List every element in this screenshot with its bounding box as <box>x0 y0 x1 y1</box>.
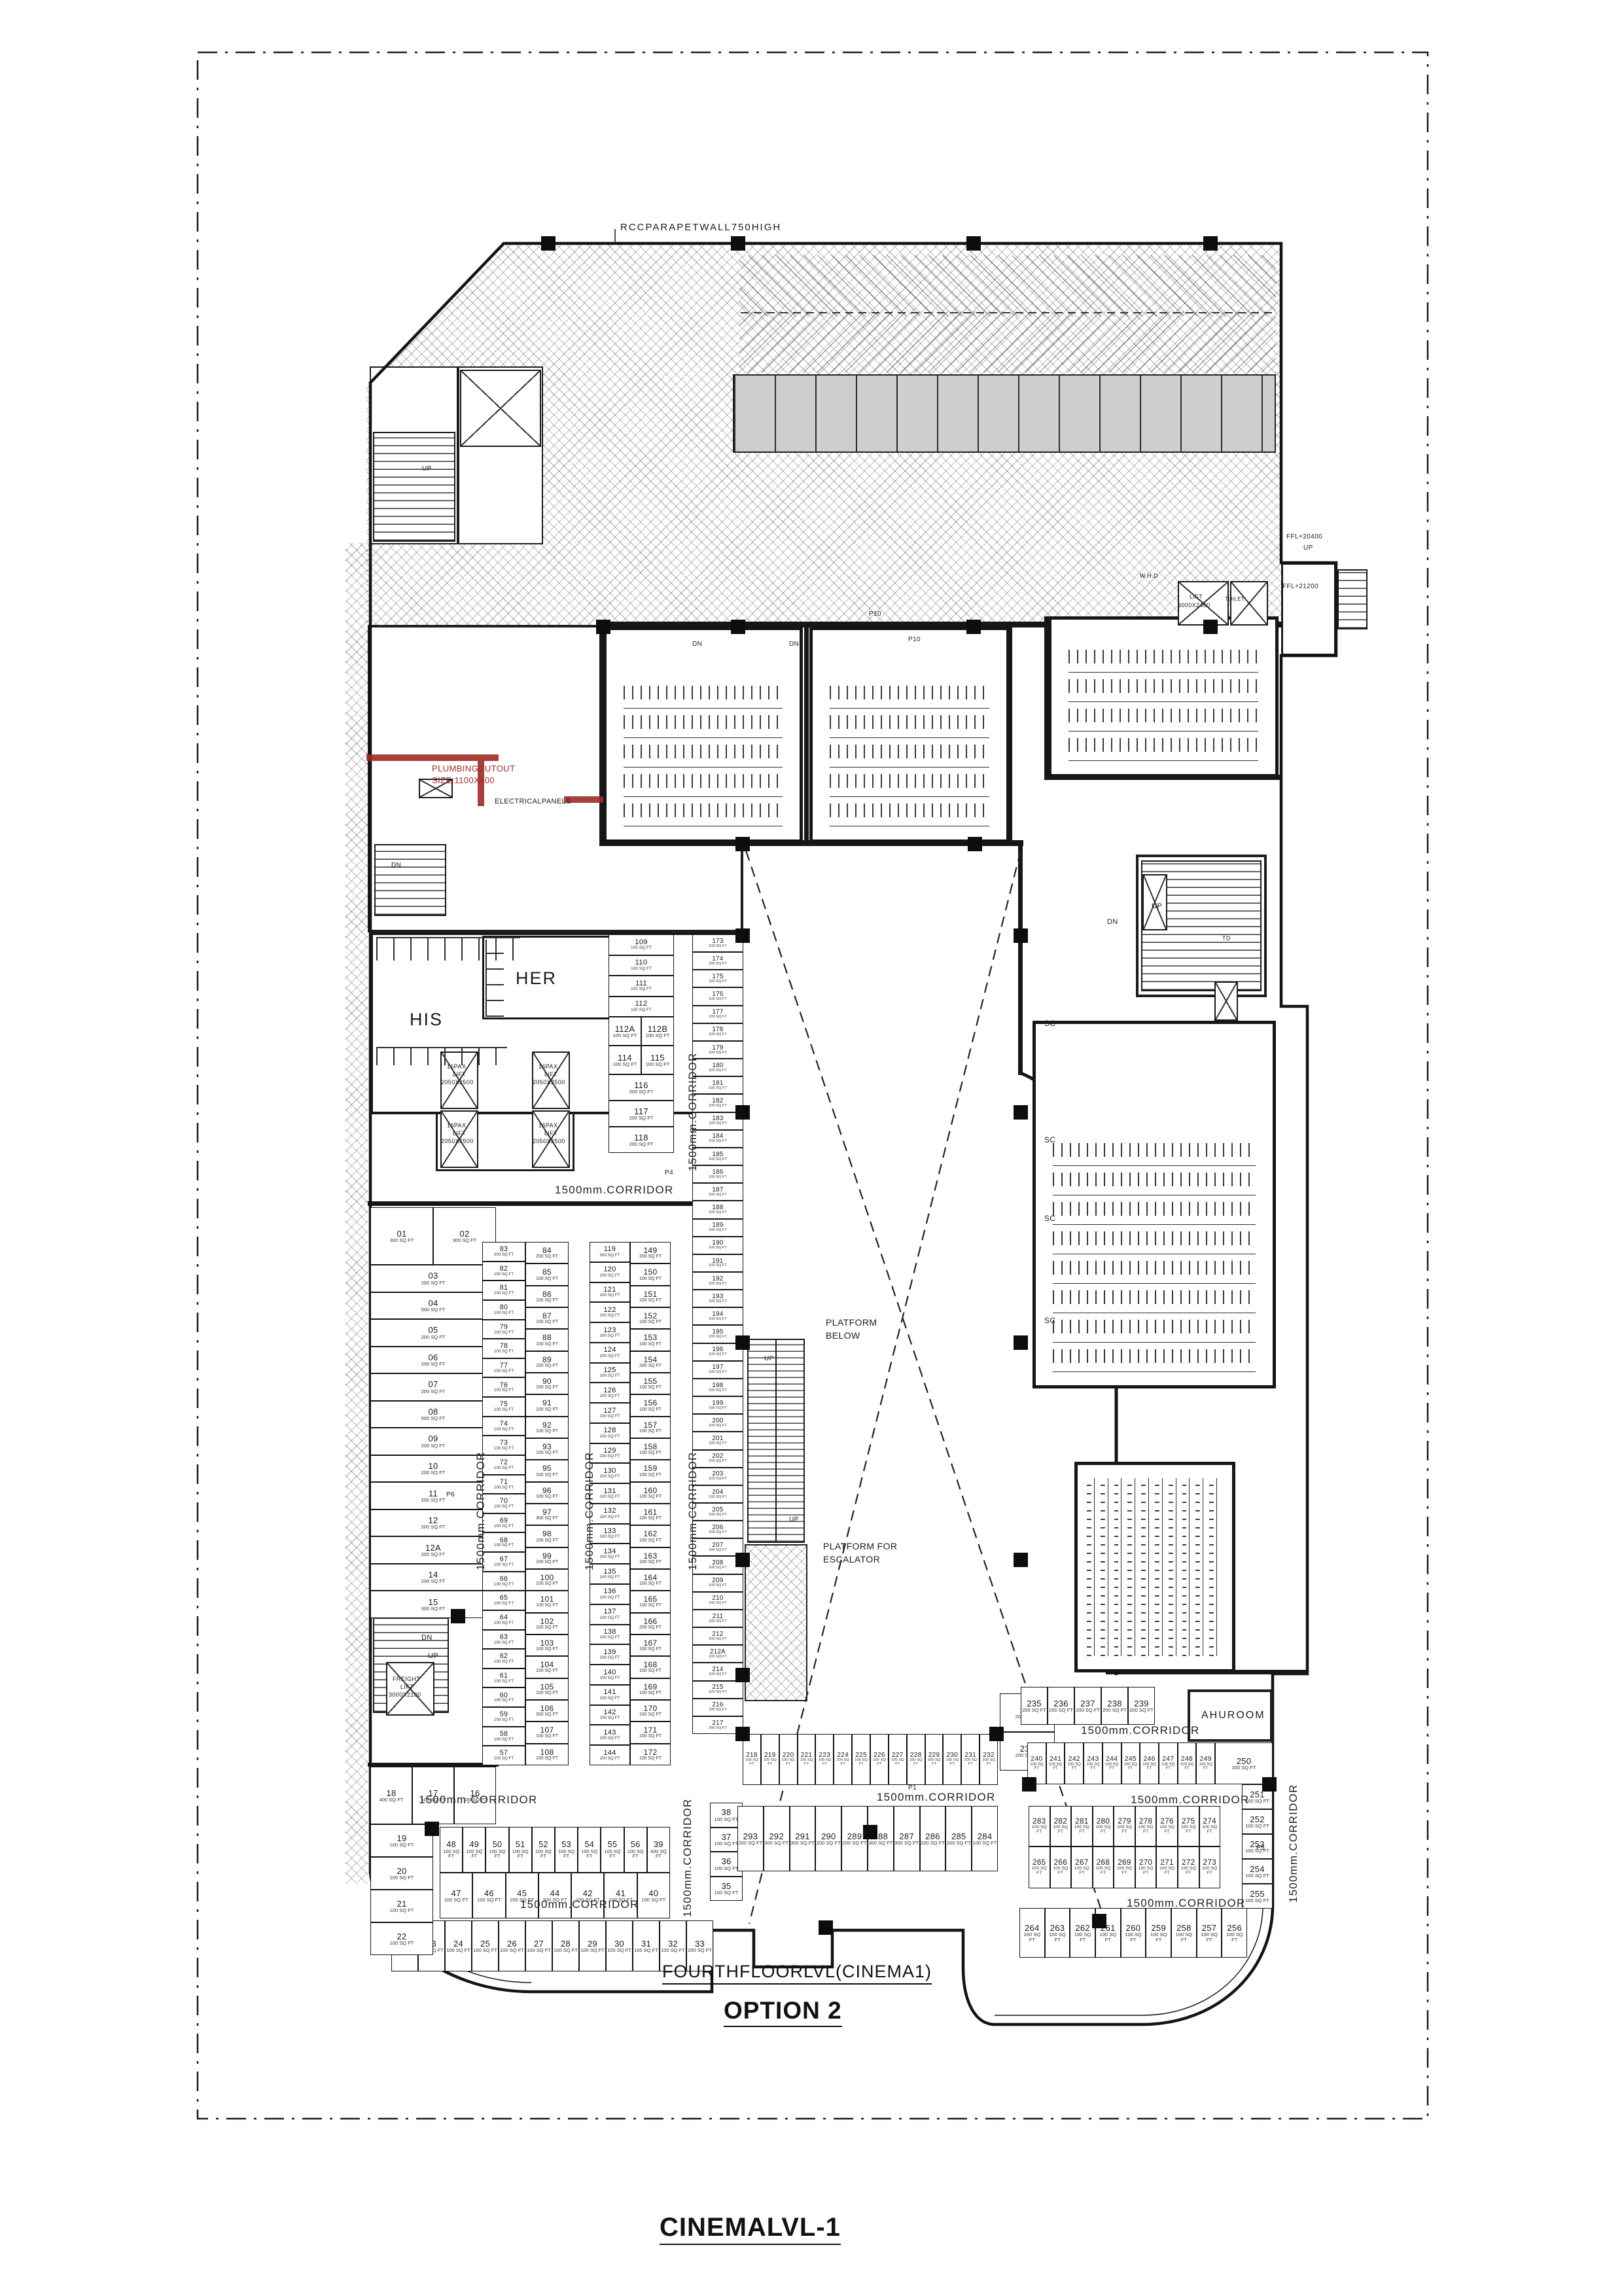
unit-area: 300 SQ FT <box>536 1516 558 1521</box>
corridor-label: 1500mm.CORRIDOR <box>1081 1725 1199 1736</box>
seat-row <box>1053 1349 1256 1372</box>
unit-number: 235 <box>1027 1699 1042 1708</box>
unit-cell: 74100 SQ FT <box>482 1417 525 1436</box>
unit-number: 01 <box>397 1229 406 1238</box>
unit-cell: 87100 SQ FT <box>525 1307 569 1329</box>
chevron-roof <box>739 255 1276 373</box>
unit-number: 03 <box>428 1271 438 1280</box>
unit-area: 100 SQ FT <box>1200 1826 1220 1835</box>
unit-area: 100 SQ FT <box>536 1603 558 1608</box>
unit-number: 41 <box>616 1889 626 1898</box>
unit-cell: 238200 SQ FT <box>1101 1687 1128 1725</box>
unit-area: 100 SQ FT <box>661 1948 685 1953</box>
unit-area: 300 SQ FT <box>790 1841 815 1846</box>
unit-area: 100 SQ FT <box>536 1581 558 1586</box>
unit-cell: 59100 SQ FT <box>482 1707 525 1727</box>
unit-cell: 09200 SQ FT <box>370 1428 496 1455</box>
seat-row <box>830 804 989 826</box>
annotation: PLATFORM <box>826 1318 877 1327</box>
unit-cell: 163100 SQ FT <box>630 1547 671 1569</box>
unit-number: 85 <box>542 1268 552 1276</box>
unit-cell: 170100 SQ FT <box>630 1700 671 1722</box>
unit-cell: 241100 SQ FT <box>1046 1742 1065 1784</box>
unit-area: 100 SQ FT <box>527 1948 551 1953</box>
unit-area: 100 SQ FT <box>613 1033 637 1038</box>
annotation: LIFT <box>544 1072 557 1078</box>
annotation: SC <box>1044 1316 1055 1324</box>
strip-83-57: 83300 SQ FT82100 SQ FT81100 SQ FT80100 S… <box>482 1242 525 1765</box>
unit-cell: 172100 SQ FT <box>630 1744 671 1765</box>
unit-cell: 223100 SQ FT <box>815 1734 834 1785</box>
unit-area: 100 SQ FT <box>494 1583 514 1587</box>
unit-area: 100 SQ FT <box>599 1334 620 1339</box>
escalator <box>747 1339 805 1543</box>
unit-area: 300 SQ FT <box>421 1606 446 1612</box>
strip-119-144: 119300 SQ FT120100 SQ FT121100 SQ FT1221… <box>590 1242 630 1765</box>
unit-number: 250 <box>1237 1757 1252 1765</box>
unit-area: 100 SQ FT <box>639 1429 662 1434</box>
unit-area: 100 SQ FT <box>536 1473 558 1477</box>
unit-cell: 110100 SQ FT <box>609 955 674 976</box>
unit-area: 100 SQ FT <box>709 1691 727 1695</box>
unit-cell: 231100 SQ FT <box>961 1734 980 1785</box>
unit-area: 100 SQ FT <box>1245 1898 1269 1903</box>
unit-area: 100 SQ FT <box>536 1451 558 1455</box>
unit-number: 18 <box>386 1789 396 1797</box>
unit-cell: 42100 SQ FT <box>571 1873 604 1918</box>
unit-area: 100 SQ FT <box>709 1193 727 1197</box>
unit-cell: 29100 SQ FT <box>579 1920 606 1971</box>
unit-cell: 186100 SQ FT <box>692 1165 743 1183</box>
unit-number: 33 <box>695 1939 705 1948</box>
corridor-label: 1500mm.CORRIDOR <box>1288 1784 1299 1903</box>
unit-cell: 15300 SQ FT <box>370 1591 496 1618</box>
unit-cell: 22100 SQ FT <box>370 1922 433 1955</box>
column-marker <box>731 620 745 634</box>
unit-cell: 154200 SQ FT <box>630 1351 671 1373</box>
unit-area: 100 SQ FT <box>494 1311 514 1315</box>
unit-number: 92 <box>542 1421 552 1429</box>
unit-cell: 68100 SQ FT <box>482 1532 525 1552</box>
unit-cell: 215100 SQ FT <box>692 1681 743 1699</box>
unit-area: 100 SQ FT <box>944 1759 961 1767</box>
unit-area: 100 SQ FT <box>494 1273 514 1277</box>
unit-cell: 151100 SQ FT <box>630 1286 671 1307</box>
unit-cell: 70100 SQ FT <box>482 1494 525 1513</box>
row-240-249: 240100 SQ FT241100 SQ FT242100 SQ FT2431… <box>1027 1742 1215 1784</box>
unit-area: 100 SQ FT <box>1159 1763 1177 1771</box>
unit-area: 100 SQ FT <box>440 1849 462 1859</box>
annotation: HER <box>516 970 557 987</box>
annotation: RCCPARAPETWALL750HIGH <box>620 222 781 232</box>
unit-area: 100 SQ FT <box>599 1656 620 1661</box>
unit-area: 100 SQ FT <box>599 1415 620 1419</box>
unit-area: 100 SQ FT <box>709 1176 727 1180</box>
unit-cell: 46100 SQ FT <box>472 1873 505 1918</box>
unit-area: 100 SQ FT <box>390 1843 414 1848</box>
unit-number: 284 <box>978 1832 993 1841</box>
unit-number: 19 <box>397 1834 406 1843</box>
unit-number: 155 <box>644 1377 658 1385</box>
unit-cell: 156100 SQ FT <box>630 1394 671 1416</box>
unit-cell: 20100 SQ FT <box>370 1857 433 1890</box>
unit-cell: 260100 SQ FT <box>1121 1908 1146 1958</box>
column-marker <box>735 928 750 943</box>
unit-area: 100 SQ FT <box>1197 1763 1214 1771</box>
annotation: 3000X2100 <box>389 1692 421 1698</box>
unit-number: 141 <box>603 1689 616 1696</box>
annotation: W.H.D <box>1140 573 1158 579</box>
unit-cell: 104100 SQ FT <box>525 1656 569 1678</box>
unit-area: 100 SQ FT <box>639 1473 662 1477</box>
annotation: UP <box>428 1653 438 1660</box>
unit-area: 100 SQ FT <box>599 1495 620 1500</box>
unit-area: 100 SQ FT <box>510 1849 531 1859</box>
annotation: ELECTRICALPANELS <box>495 798 571 805</box>
unit-number: 12 <box>428 1516 438 1525</box>
unit-number: 255 <box>1250 1890 1265 1898</box>
unit-area: 100 SQ FT <box>973 1841 997 1846</box>
unit-cell: 89100 SQ FT <box>525 1351 569 1373</box>
escalator-pit-hatch <box>745 1544 807 1701</box>
unit-number: 09 <box>428 1434 438 1443</box>
unit-area: 100 SQ FT <box>599 1515 620 1520</box>
unit-area: 100 SQ FT <box>533 1849 554 1859</box>
unit-area: 100 SQ FT <box>709 1211 727 1215</box>
unit-cell: 45200 SQ FT <box>506 1873 538 1918</box>
unit-area: 100 SQ FT <box>536 1342 558 1347</box>
unit-number: 137 <box>603 1608 616 1616</box>
unit-cell: 04500 SQ FT <box>370 1292 496 1320</box>
unit-cell: 152100 SQ FT <box>630 1307 671 1329</box>
unit-area: 100 SQ FT <box>1122 1763 1140 1771</box>
unit-area: 100 SQ FT <box>536 1691 558 1695</box>
unit-cell: 139100 SQ FT <box>590 1644 630 1665</box>
unit-cell: 62100 SQ FT <box>482 1649 525 1669</box>
seat-row <box>624 804 783 826</box>
unit-number: 40 <box>648 1889 658 1898</box>
unit-cell: 07200 SQ FT <box>370 1373 496 1401</box>
unit-area: 200 SQ FT <box>709 1727 727 1731</box>
unit-cell: 125100 SQ FT <box>590 1363 630 1383</box>
unit-cell: 263100 SQ FT <box>1045 1908 1070 1958</box>
column-marker <box>735 1668 750 1682</box>
unit-number: 236 <box>1053 1699 1068 1708</box>
unit-cell: 65100 SQ FT <box>482 1591 525 1610</box>
unit-cell: 198100 SQ FT <box>692 1379 743 1396</box>
unit-number: 118 <box>634 1133 648 1142</box>
unit-number: 162 <box>644 1530 658 1538</box>
annotation: 16PAX. <box>447 1123 468 1129</box>
unit-area: 100 SQ FT <box>536 1320 558 1324</box>
seat-row <box>624 774 783 797</box>
annotation: 2050X2500 <box>533 1139 565 1144</box>
unit-cell: 57100 SQ FT <box>482 1746 525 1765</box>
row-235-239: 235200 SQ FT236200 SQ FT237200 SQ FT2382… <box>1021 1687 1155 1725</box>
unit-area: 100 SQ FT <box>494 1525 514 1528</box>
unit-area: 200 SQ FT <box>688 1948 712 1953</box>
unit-area: 200 SQ FT <box>947 1841 971 1846</box>
seat-row <box>1053 1231 1256 1254</box>
unit-number: 30 <box>614 1939 624 1948</box>
unit-number: 20 <box>397 1867 406 1875</box>
unit-number: 246 <box>1144 1756 1156 1763</box>
stair <box>1337 569 1368 629</box>
unit-number: 12A <box>425 1544 441 1552</box>
unit-area: 100 SQ FT <box>1046 1932 1070 1942</box>
unit-cell: 84200 SQ FT <box>525 1242 569 1263</box>
unit-number: 153 <box>644 1333 658 1341</box>
unit-area: 100 SQ FT <box>639 1734 662 1739</box>
unit-area: 100 SQ FT <box>1136 1867 1156 1876</box>
unit-cell: 158100 SQ FT <box>630 1438 671 1460</box>
seat-row <box>830 686 989 709</box>
unit-number: 99 <box>542 1552 552 1560</box>
annotation: 2050X2500 <box>533 1080 565 1086</box>
unit-cell: 121100 SQ FT <box>590 1282 630 1303</box>
column-marker <box>966 236 981 251</box>
unit-number: 165 <box>644 1595 658 1603</box>
column-marker <box>1262 1777 1277 1792</box>
unit-cell: 282100 SQ FT <box>1050 1806 1072 1846</box>
unit-area: 500 SQ FT <box>421 1416 446 1421</box>
annotation: P6 <box>446 1492 455 1498</box>
unit-area: 100 SQ FT <box>494 1408 514 1412</box>
unit-cell: 69100 SQ FT <box>482 1513 525 1533</box>
unit-number: 108 <box>540 1748 554 1756</box>
unit-area: 100 SQ FT <box>709 1477 727 1481</box>
unit-number: 31 <box>641 1939 651 1948</box>
unit-number: 124 <box>603 1347 616 1354</box>
annotation: 16PAX. <box>538 1064 559 1070</box>
unit-cell: 245100 SQ FT <box>1121 1742 1140 1784</box>
unit-number: 260 <box>1126 1924 1141 1932</box>
unit-area: 200 SQ FT <box>1049 1708 1073 1713</box>
unit-cell: 55100 SQ FT <box>601 1827 624 1873</box>
unit-area: 100 SQ FT <box>1065 1763 1083 1771</box>
unit-area: 100 SQ FT <box>709 1655 727 1659</box>
unit-area: 100 SQ FT <box>1114 1867 1135 1876</box>
unit-cell: 40100 SQ FT <box>637 1873 670 1918</box>
unit-area: 100 SQ FT <box>639 1647 662 1651</box>
unit-area: 100 SQ FT <box>709 1584 727 1588</box>
unit-area: 100 SQ FT <box>494 1350 514 1354</box>
unit-cell: 112B100 SQ FT <box>641 1017 674 1046</box>
unit-cell: 275100 SQ FT <box>1178 1806 1199 1846</box>
unit-area: 200 SQ FT <box>921 1841 945 1846</box>
column-marker <box>1014 928 1028 943</box>
unit-number: 242 <box>1068 1756 1080 1763</box>
unit-area: 100 SQ FT <box>1103 1763 1121 1771</box>
unit-cell: 205100 SQ FT <box>692 1503 743 1521</box>
unit-area: 100 SQ FT <box>639 1385 662 1390</box>
unit-cell: 249100 SQ FT <box>1196 1742 1215 1784</box>
unit-cell: 293200 SQ FT <box>737 1806 764 1871</box>
unit-area: 100 SQ FT <box>908 1759 925 1767</box>
unit-area: 100 SQ FT <box>639 1407 662 1412</box>
unit-cell: 287300 SQ FT <box>894 1806 920 1871</box>
seat-row <box>1068 679 1258 702</box>
seat-row <box>1169 1478 1176 1656</box>
unit-area: 100 SQ FT <box>1051 1826 1071 1835</box>
unit-cell: 181100 SQ FT <box>692 1076 743 1094</box>
unit-number: 71 <box>500 1479 508 1486</box>
unit-area: 200 SQ FT <box>421 1552 446 1557</box>
unit-number: 154 <box>644 1356 658 1364</box>
unit-cell: 209100 SQ FT <box>692 1574 743 1592</box>
unit-area: 100 SQ FT <box>631 946 652 951</box>
unit-cell: 227100 SQ FT <box>889 1734 907 1785</box>
unit-area: 300 SQ FT <box>894 1841 919 1846</box>
unit-cell: 169100 SQ FT <box>630 1678 671 1700</box>
unit-cell: 30100 SQ FT <box>606 1920 633 1971</box>
unit-area: 100 SQ FT <box>599 1314 620 1318</box>
unit-cell: 175100 SQ FT <box>692 970 743 987</box>
unit-number: 112A <box>615 1025 635 1033</box>
unit-cell: 116200 SQ FT <box>609 1074 674 1101</box>
unit-number: 08 <box>428 1407 438 1416</box>
unit-number: 96 <box>542 1487 552 1494</box>
unit-cell: 95100 SQ FT <box>525 1460 569 1481</box>
unit-cell: 254100 SQ FT <box>1242 1859 1273 1884</box>
unit-area: 100 SQ FT <box>536 1756 558 1761</box>
annotation: P10 <box>869 611 881 618</box>
unit-area: 200 SQ FT <box>421 1579 446 1584</box>
unit-area: 100 SQ FT <box>709 1673 727 1677</box>
unit-cell: 122100 SQ FT <box>590 1302 630 1322</box>
unit-cell: 264200 SQ FT <box>1019 1908 1045 1958</box>
unit-area: 100 SQ FT <box>639 1516 662 1521</box>
unit-area: 100 SQ FT <box>1072 1867 1092 1876</box>
unit-number: 256 <box>1227 1924 1242 1932</box>
unit-cell: 53100 SQ FT <box>555 1827 578 1873</box>
unit-area: 100 SQ FT <box>709 1335 727 1339</box>
unit-cell: 228100 SQ FT <box>907 1734 925 1785</box>
unit-area: 100 SQ FT <box>1084 1763 1102 1771</box>
unit-area: 100 SQ FT <box>1197 1932 1222 1942</box>
unit-number: 289 <box>847 1832 862 1841</box>
unit-cell: 80100 SQ FT <box>482 1300 525 1320</box>
unit-area: 100 SQ FT <box>607 1948 631 1953</box>
unit-area: 100 SQ FT <box>709 1229 727 1233</box>
unit-area: 100 SQ FT <box>631 987 652 992</box>
unit-number: 98 <box>542 1530 552 1538</box>
unit-area: 100 SQ FT <box>463 1849 485 1859</box>
unit-area: 100 SQ FT <box>798 1759 815 1767</box>
unit-number: 84 <box>542 1246 552 1254</box>
unit-number: 157 <box>644 1421 658 1429</box>
unit-area: 300 SQ FT <box>390 1238 414 1243</box>
unit-cell: 276100 SQ FT <box>1156 1806 1178 1846</box>
annotation: LIFT <box>1190 594 1203 600</box>
unit-area: 100 SQ FT <box>536 1385 558 1390</box>
unit-cell: 225100 SQ FT <box>852 1734 870 1785</box>
unit-area: 100 SQ FT <box>1096 1932 1120 1942</box>
unit-number: 97 <box>542 1508 552 1516</box>
unit-area: 100 SQ FT <box>599 1274 620 1279</box>
unit-cell: 157100 SQ FT <box>630 1417 671 1438</box>
unit-area: 100 SQ FT <box>853 1759 870 1767</box>
unit-area: 100 SQ FT <box>494 1641 514 1645</box>
right-service-annex <box>1281 563 1336 656</box>
unit-number: 120 <box>603 1266 616 1273</box>
unit-number: 117 <box>634 1107 648 1116</box>
unit-number: 05 <box>428 1326 438 1334</box>
corridor-label: 1500mm.CORRIDOR <box>419 1794 537 1805</box>
unit-area: 100 SQ FT <box>816 1759 833 1767</box>
unit-area: 100 SQ FT <box>639 1712 662 1717</box>
unit-cell: 01300 SQ FT <box>370 1207 433 1265</box>
seat-row <box>1068 650 1258 673</box>
unit-cell: 290200 SQ FT <box>815 1806 841 1871</box>
unit-cell: 109100 SQ FT <box>609 934 674 955</box>
truss-band <box>733 374 1276 453</box>
unit-number: 10 <box>428 1462 438 1470</box>
annotation: LIFT <box>453 1072 466 1078</box>
unit-area: 100 SQ FT <box>599 1294 620 1298</box>
unit-area: 300 SQ FT <box>764 1841 788 1846</box>
unit-area: 200 SQ FT <box>421 1389 446 1394</box>
unit-area: 100 SQ FT <box>639 1342 662 1347</box>
unit-number: 32 <box>668 1939 678 1948</box>
unit-cell: 221100 SQ FT <box>798 1734 816 1785</box>
annotation: DN <box>692 641 702 648</box>
column-marker <box>451 1609 465 1623</box>
unit-number: 87 <box>542 1312 552 1320</box>
unit-number: 11 <box>429 1489 438 1498</box>
unit-cell: 280100 SQ FT <box>1093 1806 1114 1846</box>
unit-cell: 103100 SQ FT <box>525 1634 569 1656</box>
unit-cell: 120100 SQ FT <box>590 1262 630 1282</box>
unit-cell: 174100 SQ FT <box>692 952 743 970</box>
unit-area: 300 SQ FT <box>536 1712 558 1717</box>
unit-area: 100 SQ FT <box>444 1898 468 1903</box>
unit-cell: 91100 SQ FT <box>525 1394 569 1416</box>
unit-cell: 281100 SQ FT <box>1071 1806 1093 1846</box>
unit-area: 100 SQ FT <box>494 1544 514 1547</box>
seat-row <box>1195 1478 1203 1656</box>
unit-area: 100 SQ FT <box>709 1602 727 1606</box>
unit-area: 100 SQ FT <box>494 1699 514 1703</box>
corridor-label: 1500mm.CORRIDOR <box>687 1053 698 1171</box>
unit-area: 100 SQ FT <box>625 1849 646 1859</box>
unit-area: 100 SQ FT <box>599 1435 620 1439</box>
stair <box>373 432 455 542</box>
unit-area: 300 SQ FT <box>868 1841 892 1846</box>
unit-area: 100 SQ FT <box>494 1757 514 1761</box>
unit-cell: 97300 SQ FT <box>525 1504 569 1525</box>
unit-area: 200 SQ FT <box>1232 1765 1256 1771</box>
unit-area: 100 SQ FT <box>709 1424 727 1428</box>
unit-number: 14 <box>428 1570 438 1579</box>
unit-area: 100 SQ FT <box>390 1941 414 1946</box>
annotation: FREIGHT <box>393 1676 420 1682</box>
unit-number: 47 <box>451 1889 461 1898</box>
annotation: P4 <box>665 1170 673 1176</box>
floor-plan-sheet: FOURTHFLOORLVL(CINEMA1) OPTION 2 CINEMAL… <box>0 0 1624 2296</box>
unit-area: 100 SQ FT <box>1114 1826 1135 1835</box>
unit-cell: 159100 SQ FT <box>630 1460 671 1481</box>
unit-area: 100 SQ FT <box>1178 1826 1199 1835</box>
annotation: AHUROOM <box>1201 1710 1265 1721</box>
unit-area: 100 SQ FT <box>1051 1867 1071 1876</box>
unit-area: 100 SQ FT <box>390 1908 414 1913</box>
unit-area: 200 SQ FT <box>1076 1708 1100 1713</box>
her-stalls-column <box>485 940 504 1017</box>
unit-cell: 52100 SQ FT <box>532 1827 555 1873</box>
unit-area: 200 SQ FT <box>421 1280 446 1286</box>
unit-area: 100 SQ FT <box>639 1538 662 1543</box>
